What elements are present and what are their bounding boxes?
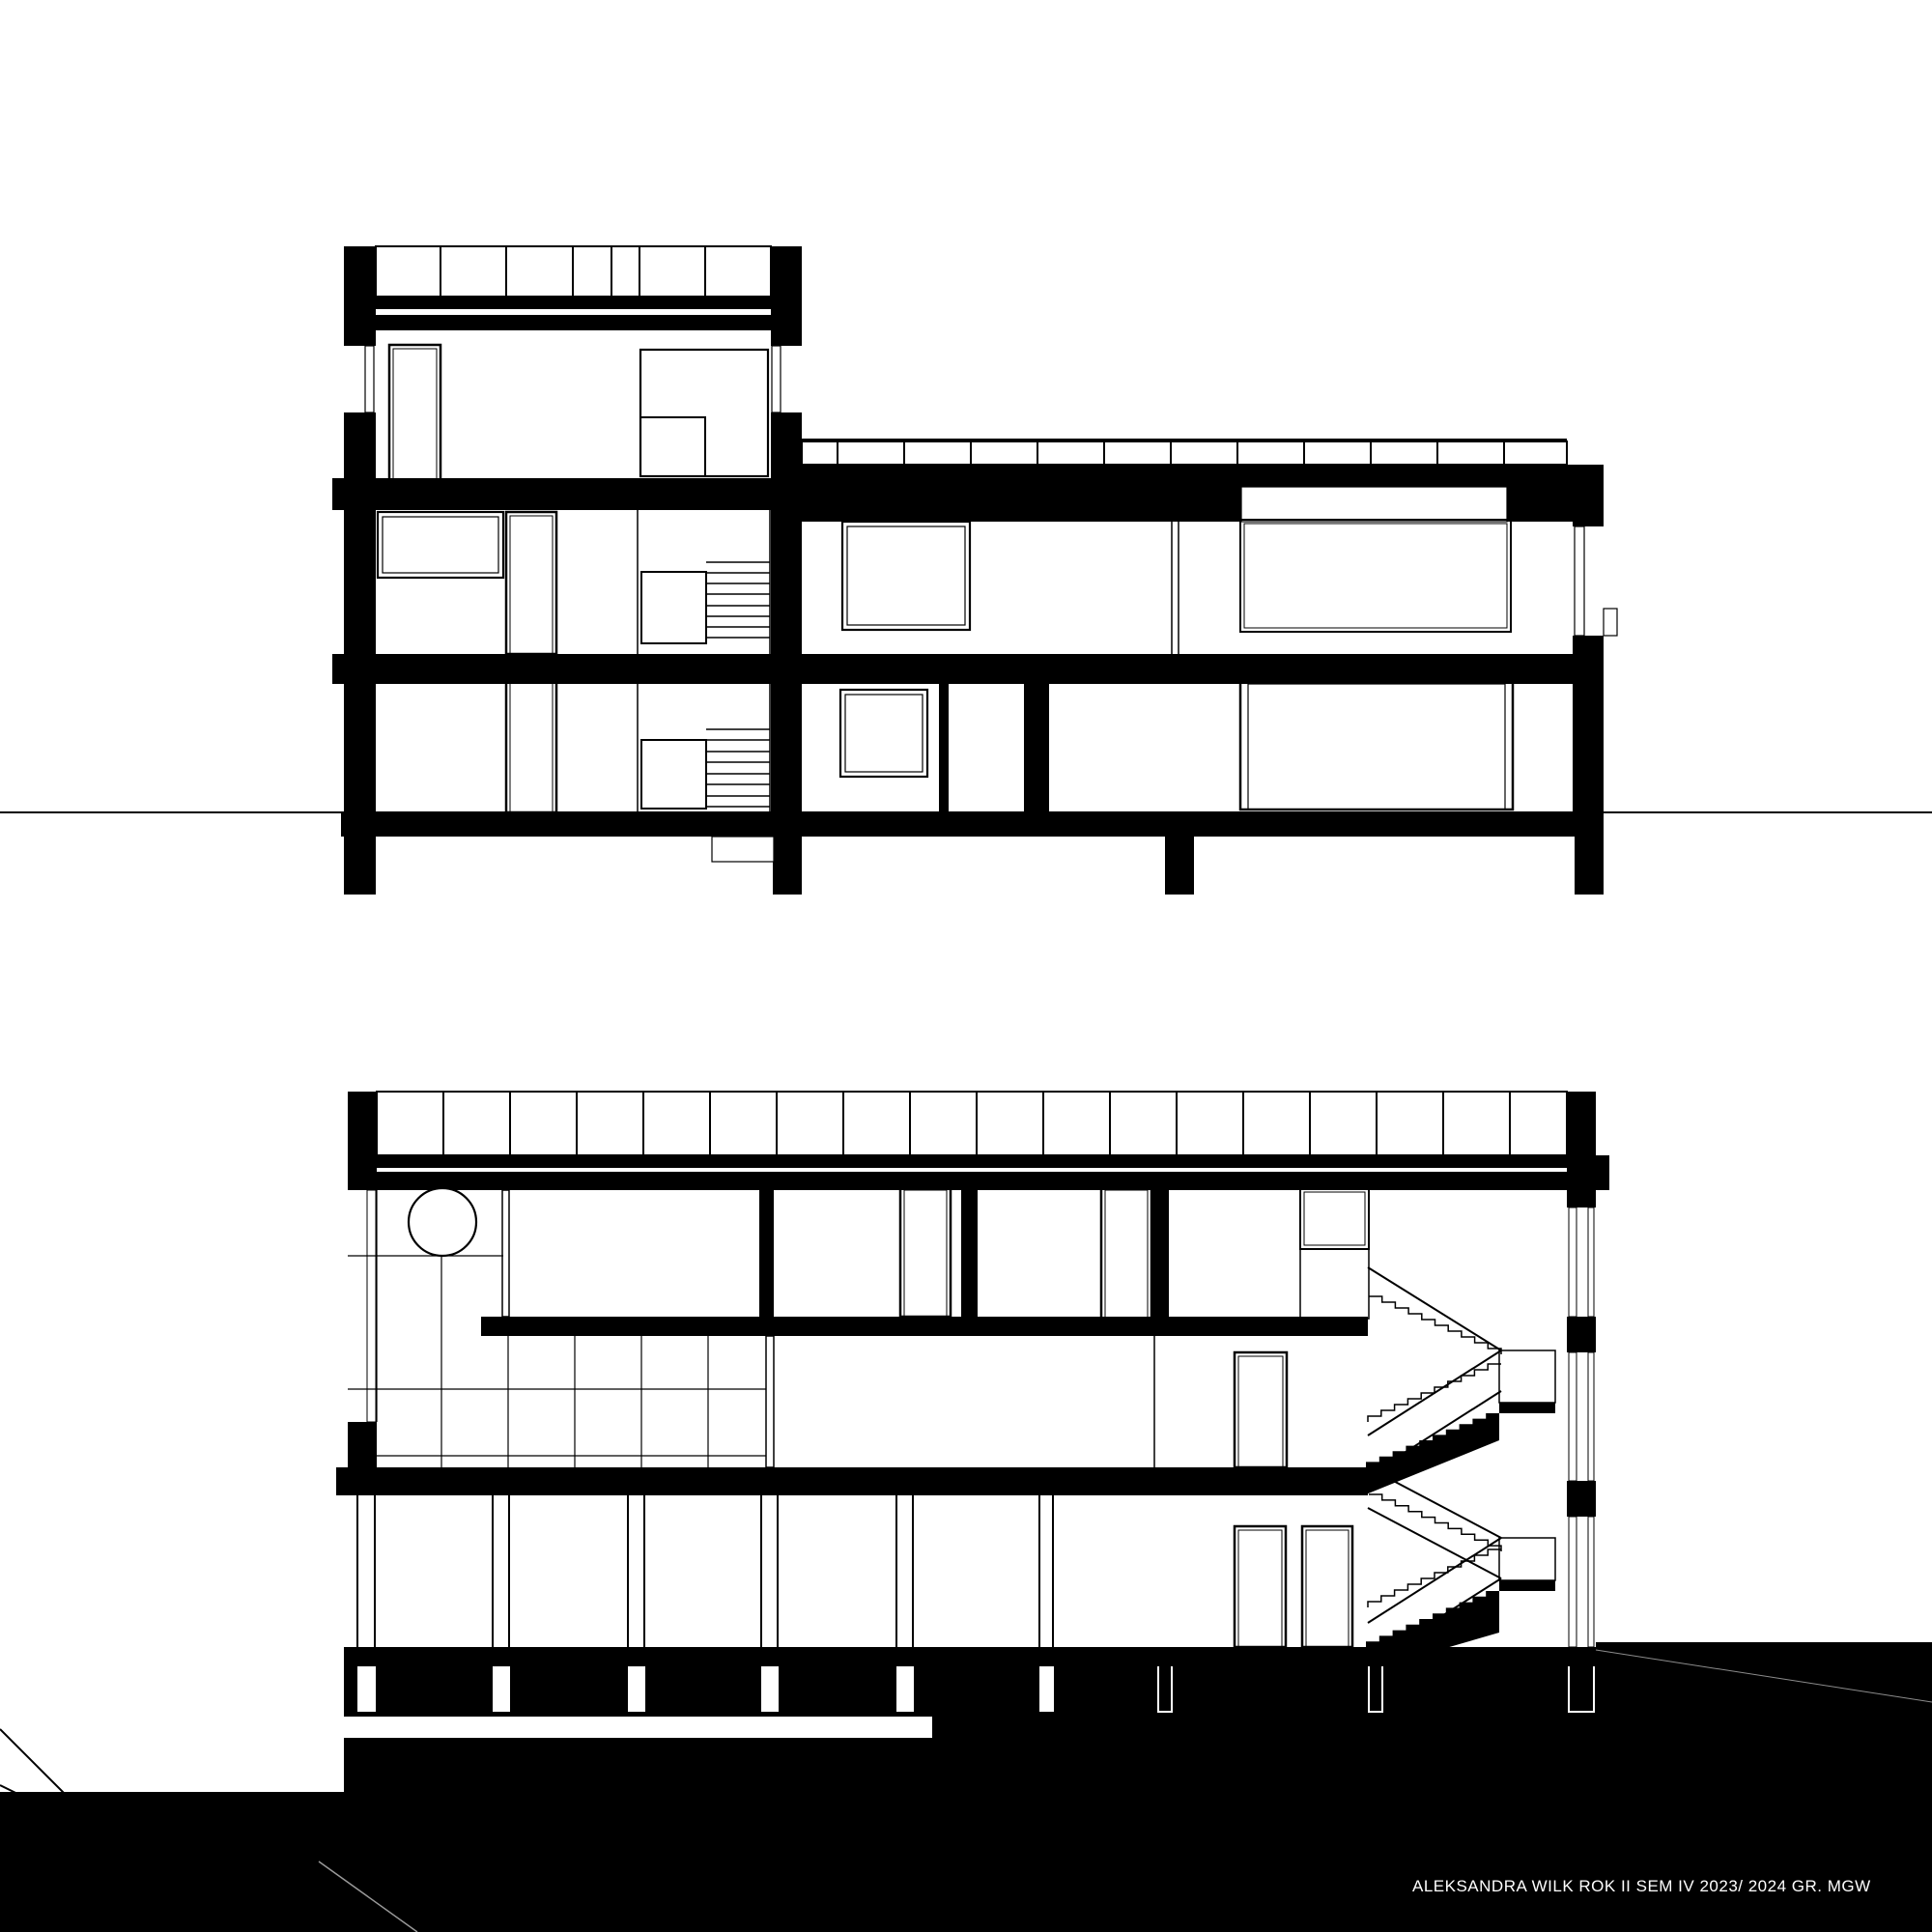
lower-right-wall xyxy=(1567,1092,1596,1647)
lower-ground-floor xyxy=(357,1495,1352,1647)
lower-left-wall xyxy=(348,1092,377,1495)
main-floor-slab xyxy=(336,1467,1368,1495)
left-exterior-wall xyxy=(344,246,376,838)
lower-middle-level xyxy=(766,1336,1287,1467)
lower-section-drawing xyxy=(336,1092,1609,1671)
stair-treads-ground xyxy=(706,729,770,807)
foundation-strip xyxy=(333,1717,932,1738)
floor-slab-2 xyxy=(332,478,810,510)
terrain: ALEKSANDRA WILK ROK II SEM IV 2023/ 2024… xyxy=(0,1642,1932,1932)
upper-middle-floor-left xyxy=(378,510,770,654)
upper-ground-floor xyxy=(506,676,1513,812)
scissor-stair xyxy=(1366,1267,1555,1671)
mezzanine-slab xyxy=(481,1317,1368,1336)
architectural-sections-canvas: ALEKSANDRA WILK ROK II SEM IV 2023/ 2024… xyxy=(0,0,1932,1932)
drawing-sheet: ALEKSANDRA WILK ROK II SEM IV 2023/ 2024… xyxy=(0,0,1932,1932)
upper-foundation xyxy=(341,812,1604,895)
upper-section-drawing xyxy=(332,246,1617,895)
colonnade xyxy=(357,1495,1053,1647)
right-block-roof xyxy=(802,439,1604,522)
porthole-window xyxy=(409,1188,476,1256)
stair-treads-middle xyxy=(706,562,770,638)
lower-upper-floor xyxy=(502,1186,1369,1319)
upper-roof-skylights xyxy=(344,246,802,330)
upper-top-floor xyxy=(389,246,802,812)
caption: ALEKSANDRA WILK ROK II SEM IV 2023/ 2024… xyxy=(1412,1877,1871,1895)
lower-roof-skylights xyxy=(348,1092,1609,1190)
